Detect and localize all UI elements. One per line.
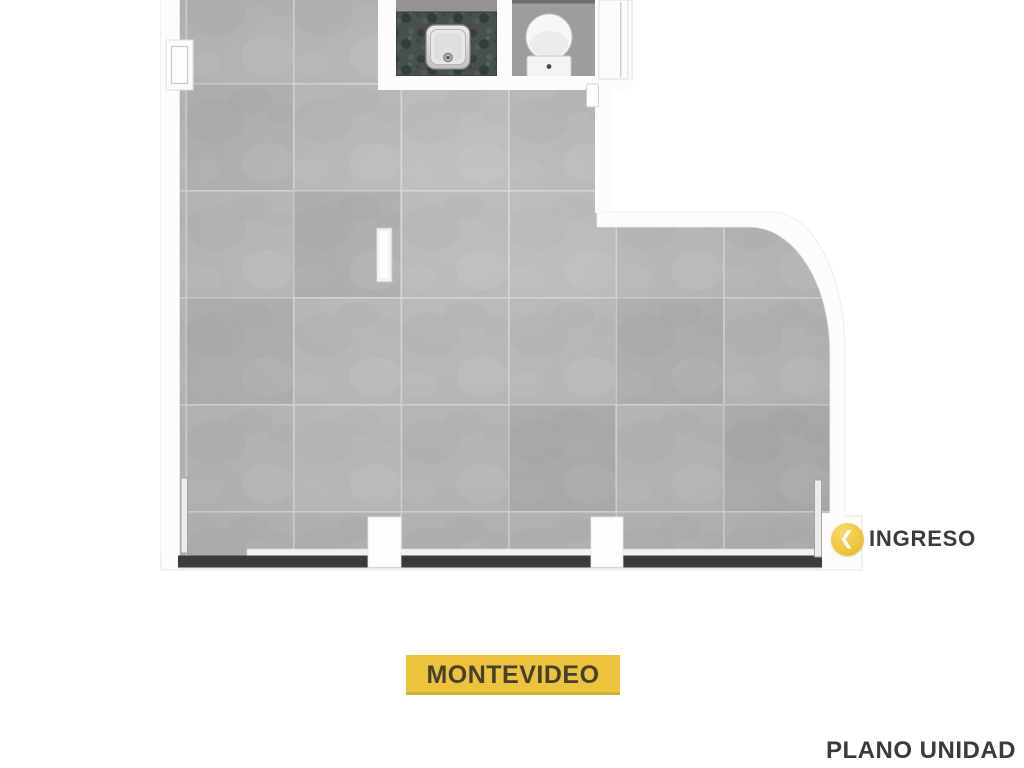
small-door-jamb (587, 84, 599, 107)
facade-pillar (368, 517, 401, 567)
street-label: MONTEVIDEO (426, 661, 599, 690)
chevron-left-icon: ❮ (839, 530, 854, 548)
street-banner: MONTEVIDEO (406, 655, 620, 695)
toilet (526, 14, 572, 77)
entrance-badge: ❮ INGRESO (831, 522, 976, 556)
column (377, 228, 393, 282)
left-door-frame (181, 478, 188, 553)
toilet-room (511, 0, 595, 77)
bathroom-vanity (396, 0, 497, 76)
left-window (166, 40, 193, 90)
entrance-label: INGRESO (869, 526, 976, 552)
plan-caption: PLANO UNIDAD (826, 737, 1016, 765)
floorplan-graphic (0, 0, 1024, 600)
facade-pillar (591, 517, 623, 567)
floor-plan-page: ❮ INGRESO MONTEVIDEO PLANO UNIDAD (0, 0, 1024, 768)
top-right-window (599, 0, 628, 79)
entrance-door-frame (815, 480, 822, 557)
entrance-arrow-icon: ❮ (831, 523, 864, 556)
sink (426, 25, 470, 69)
